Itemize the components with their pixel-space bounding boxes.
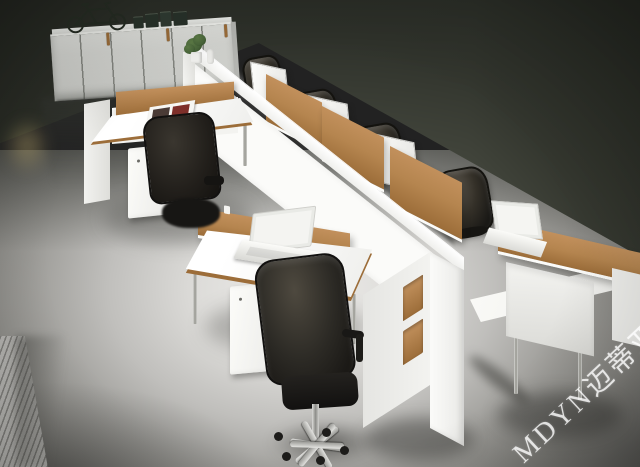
office-render-scene: MDYN迈蒂亚诺 [0,0,640,467]
vignette-overlay [0,0,640,467]
